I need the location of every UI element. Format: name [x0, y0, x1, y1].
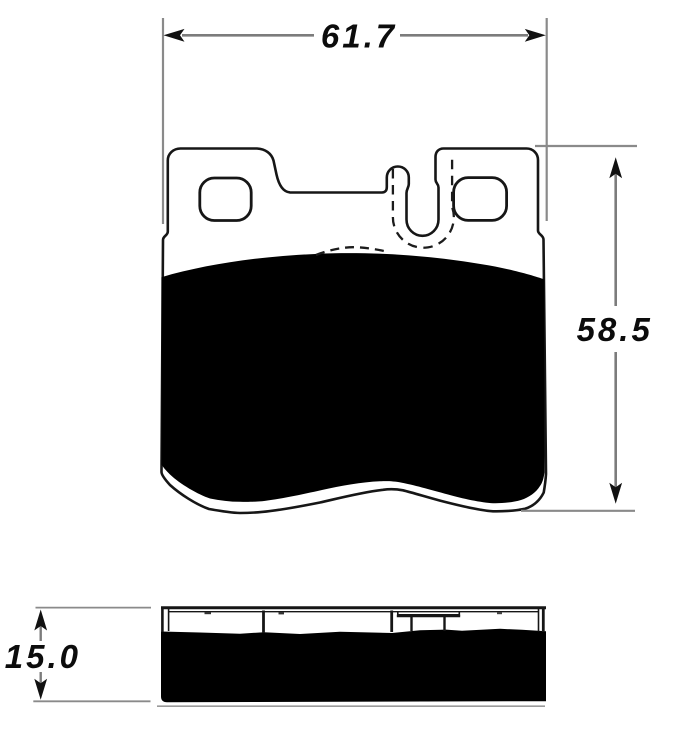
svg-text:15.0: 15.0 [5, 638, 81, 675]
svg-text:58.5: 58.5 [577, 311, 653, 348]
svg-text:61.7: 61.7 [321, 17, 397, 54]
